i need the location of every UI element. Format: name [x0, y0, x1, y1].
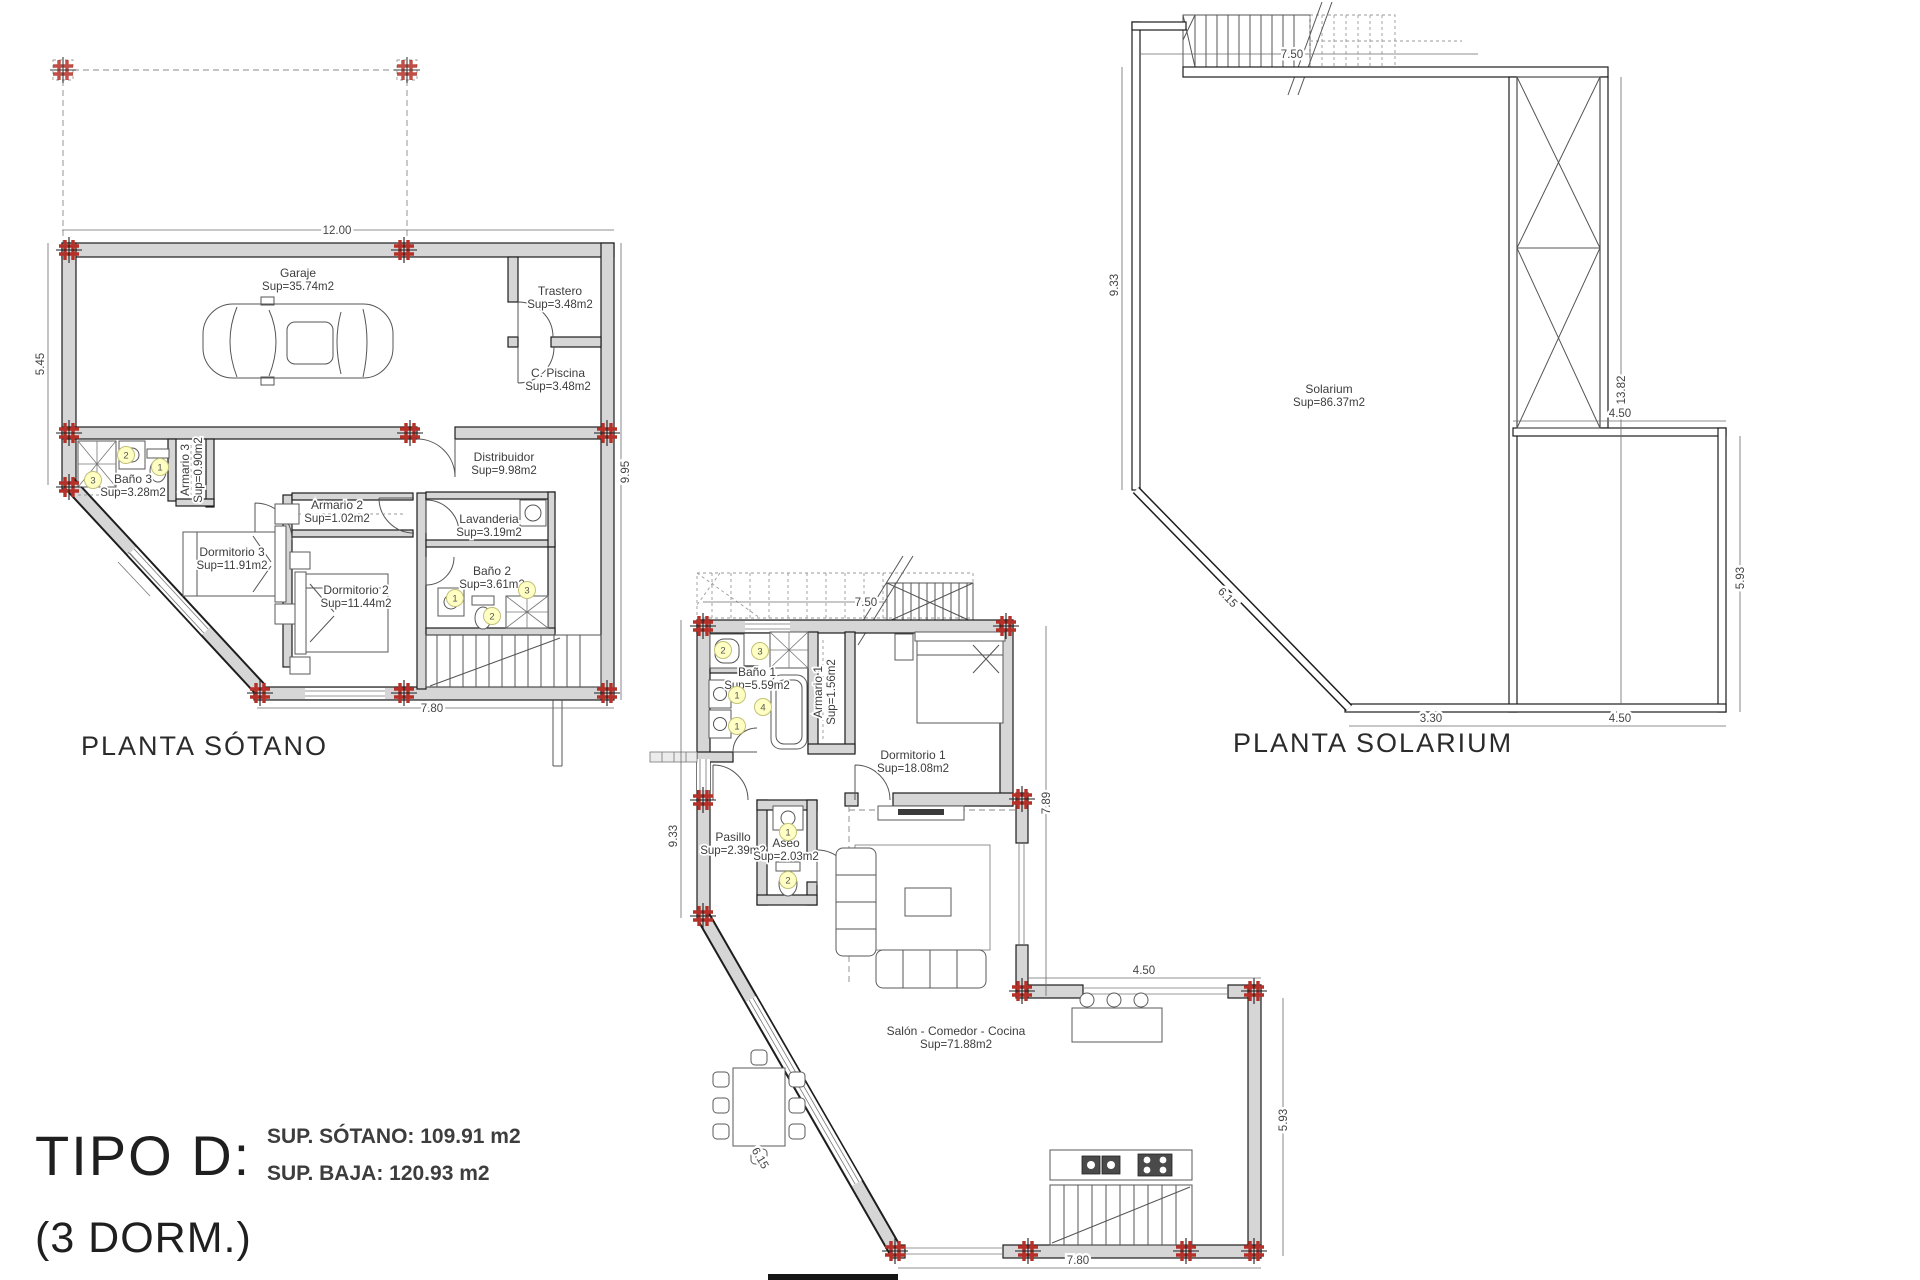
room-bano2: Baño 2: [473, 564, 511, 578]
svg-text:Sup=9.98m2: Sup=9.98m2: [471, 465, 537, 477]
plan-baja: 7.50 9.33 7.89 4.50 5.93 6.15 7.80 Baño …: [650, 556, 1290, 1280]
dim-sotano-top: 12.00: [323, 225, 352, 237]
dorm-count-label: (3 DORM.): [35, 1214, 252, 1262]
svg-text:1: 1: [734, 722, 739, 733]
baja-stairs-icon: [1050, 1185, 1192, 1245]
floorplan-sheet: 12.00 5.45 9.95 7.80 Garaje Sup=35.74m2 …: [0, 0, 1920, 1280]
kitchen-island-icon: [1072, 993, 1162, 1042]
svg-text:3: 3: [757, 647, 762, 658]
plan-solarium: 7.50 9.33 13.82 4.50 5.93 6.15 3.30 4.50…: [1109, 2, 1747, 758]
svg-text:Armario 1: Armario 1: [811, 666, 825, 718]
plan-title-sotano: PLANTA SÓTANO: [81, 730, 328, 761]
svg-text:Sup=3.19m2: Sup=3.19m2: [456, 527, 522, 539]
svg-text:3: 3: [90, 476, 95, 487]
dim-solarium-right: 5.93: [1735, 567, 1747, 589]
type-label: TIPO D:: [35, 1124, 251, 1187]
solarium-dimensions: 7.50 9.33 13.82 4.50 5.93 6.15 3.30 4.50: [1109, 49, 1747, 726]
plan-title-solarium: PLANTA SOLARIUM: [1233, 728, 1513, 758]
dim-baja-right-lower: 5.93: [1278, 1109, 1290, 1131]
dim-solarium-terrace-top: 4.50: [1609, 408, 1631, 420]
svg-text:Sup=18.08m2: Sup=18.08m2: [877, 763, 949, 775]
title-block: TIPO D: (3 DORM.) SUP. SÓTANO: 109.91 m2…: [35, 1124, 521, 1262]
room-armario1: Armario 1 Sup=1.56m2: [811, 659, 838, 725]
room-dormitorio2: Dormitorio 2: [323, 583, 389, 597]
svg-text:2: 2: [489, 612, 494, 623]
svg-text:Sup=86.37m2: Sup=86.37m2: [1293, 397, 1365, 409]
svg-text:Sup=3.48m2: Sup=3.48m2: [525, 381, 591, 393]
svg-text:1: 1: [785, 828, 790, 839]
driveway-projection: [50, 57, 420, 243]
svg-text:Sup=11.44m2: Sup=11.44m2: [320, 598, 391, 610]
svg-text:Sup=1.56m2: Sup=1.56m2: [826, 659, 838, 725]
room-garaje: Garaje: [280, 266, 316, 280]
room-bano1: Baño 1: [738, 665, 776, 679]
solarium-lattice-boxes: [1517, 77, 1600, 428]
dim-baja-right-upper: 7.89: [1041, 792, 1053, 814]
room-salon: Salón - Comedor - Cocina: [887, 1024, 1026, 1038]
svg-text:Sup=0.90m2: Sup=0.90m2: [193, 437, 205, 503]
svg-text:Sup=3.48m2: Sup=3.48m2: [527, 299, 593, 311]
sofa-icon: [836, 845, 990, 988]
room-pasillo: Pasillo: [715, 830, 751, 844]
svg-text:Sup=2.03m2: Sup=2.03m2: [753, 851, 819, 863]
bed-icon-dorm2: [290, 552, 388, 674]
svg-text:1: 1: [734, 691, 739, 702]
svg-text:Sup=71.88m2: Sup=71.88m2: [920, 1039, 992, 1051]
dim-solarium-bottom-right: 4.50: [1609, 713, 1631, 725]
kitchen-counter-icon: [1050, 1150, 1192, 1180]
room-dormitorio1: Dormitorio 1: [880, 748, 946, 762]
svg-text:2: 2: [785, 876, 790, 887]
svg-text:2: 2: [123, 451, 128, 462]
svg-text:Sup=3.28m2: Sup=3.28m2: [100, 487, 166, 499]
tv-unit-icon: [878, 806, 964, 820]
solarium-walls: [1132, 22, 1726, 712]
dim-sotano-right: 9.95: [620, 461, 632, 483]
dim-baja-projection: 4.50: [1133, 965, 1155, 977]
sup-baja-label: SUP. BAJA: 120.93 m2: [267, 1162, 490, 1185]
clipped-plan-label: [768, 1274, 898, 1280]
dim-solarium-column: 13.82: [1616, 376, 1628, 405]
room-dormitorio3: Dormitorio 3: [199, 545, 265, 559]
dim-baja-top: 7.50: [855, 597, 877, 609]
room-lavanderia: Lavanderia: [459, 512, 519, 526]
plan-sotano: 12.00 5.45 9.95 7.80 Garaje Sup=35.74m2 …: [35, 57, 632, 766]
room-c-piscina: C. Piscina: [531, 366, 585, 380]
svg-text:Sup=35.74m2: Sup=35.74m2: [262, 281, 334, 293]
svg-text:Sup=1.02m2: Sup=1.02m2: [304, 513, 370, 525]
floorplan-drawing: 12.00 5.45 9.95 7.80 Garaje Sup=35.74m2 …: [0, 0, 1920, 1280]
dim-sotano-bottom: 7.80: [421, 703, 443, 715]
dim-solarium-bottom-left: 3.30: [1420, 713, 1442, 725]
svg-text:Sup=3.61m2: Sup=3.61m2: [459, 579, 525, 591]
dim-sotano-left: 5.45: [35, 353, 47, 375]
svg-text:Sup=11.91m2: Sup=11.91m2: [196, 560, 267, 572]
room-armario2: Armario 2: [311, 498, 363, 512]
dim-solarium-left: 9.33: [1109, 274, 1121, 296]
svg-text:1: 1: [452, 594, 457, 605]
sup-sotano-label: SUP. SÓTANO: 109.91 m2: [267, 1124, 521, 1148]
svg-text:3: 3: [524, 586, 529, 597]
sotano-stairs-icon: [426, 635, 601, 687]
svg-text:2: 2: [720, 646, 725, 657]
dim-baja-bottom: 7.80: [1067, 1255, 1089, 1267]
room-bano3: Baño 3: [114, 472, 152, 486]
room-armario3: Armario 3 Sup=0.90m2: [178, 437, 205, 503]
svg-text:1: 1: [157, 463, 162, 474]
dim-baja-left: 9.33: [668, 825, 680, 847]
room-solarium: Solarium: [1305, 382, 1352, 396]
room-trastero: Trastero: [538, 284, 583, 298]
solarium-stairs-icon: [1183, 2, 1462, 95]
svg-text:Armario 3: Armario 3: [178, 444, 192, 496]
car-icon: [203, 297, 393, 385]
room-distribuidor: Distribuidor: [474, 450, 535, 464]
dim-solarium-top: 7.50: [1281, 49, 1303, 61]
washer-icon: [520, 500, 546, 526]
bed-icon-dorm1: [895, 632, 1005, 723]
svg-text:4: 4: [760, 703, 765, 714]
